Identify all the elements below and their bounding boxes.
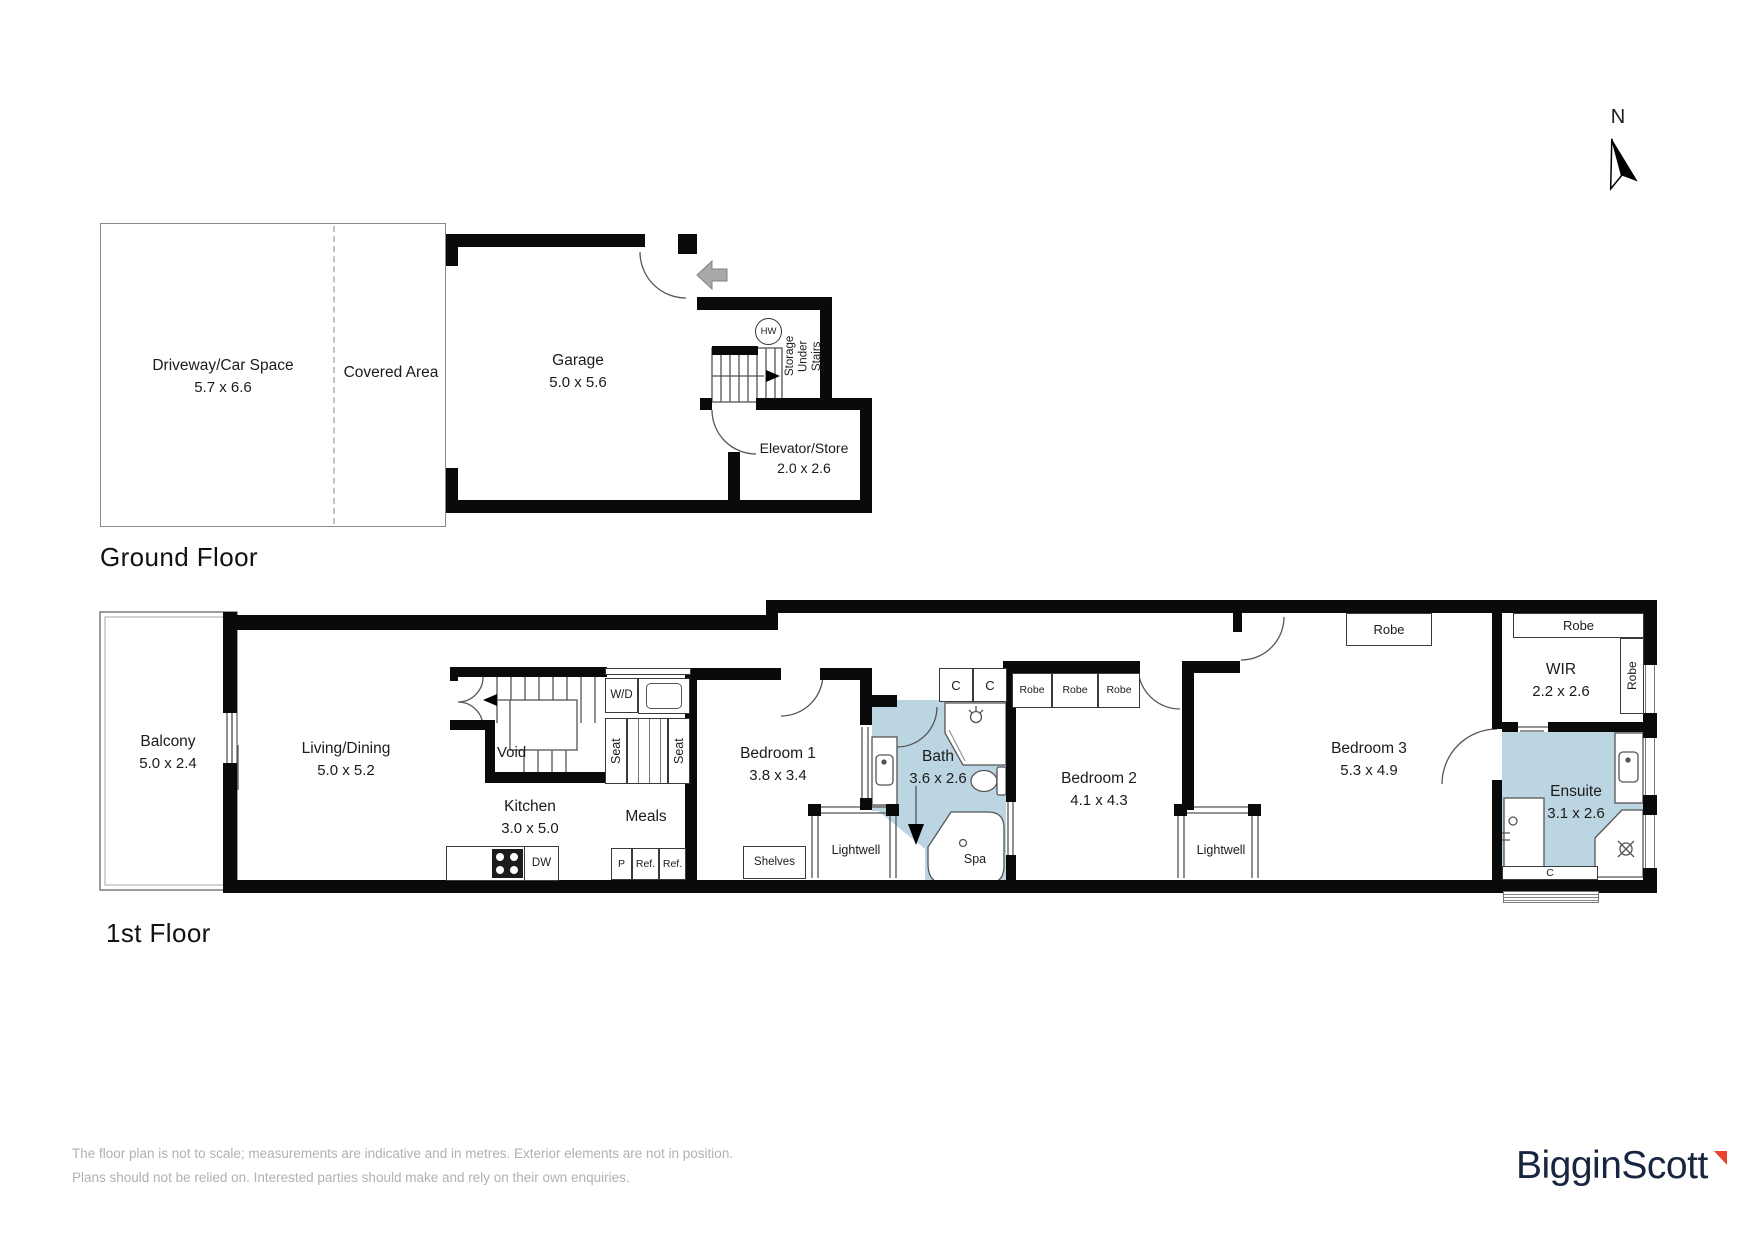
north-label: N <box>1600 106 1636 129</box>
storage-line-1: Storage <box>784 336 796 376</box>
ff-wall-right-2 <box>1643 713 1657 738</box>
bed3-wir-wall-upper <box>1492 600 1502 729</box>
fridge-box-2: Ref. <box>659 848 686 880</box>
disclaimer: The floor plan is not to scale; measurem… <box>72 1142 733 1190</box>
storage-line-2: Under <box>798 340 810 371</box>
seat-right-label: Seat <box>673 738 686 764</box>
shelves-box: Shelves <box>743 846 806 879</box>
seat-left-label: Seat <box>610 738 623 764</box>
stair-wall-left-lower <box>485 720 495 782</box>
wir-name: WIR <box>1532 659 1590 681</box>
balcony-dims: 5.0 x 2.4 <box>139 753 197 775</box>
disclaimer-line-2: Plans should not be relied on. Intereste… <box>72 1166 733 1190</box>
wir-robe-top: Robe <box>1513 613 1644 638</box>
ensuite-toilet <box>1504 798 1544 873</box>
seat-right-box: Seat <box>668 718 690 784</box>
driveway-name: Driveway/Car Space <box>152 355 293 377</box>
bath-vanity-tap <box>882 760 886 764</box>
elevator-dims: 2.0 x 2.6 <box>760 458 849 478</box>
dishwasher-box: DW <box>524 846 559 881</box>
stair-void-rail <box>510 700 577 750</box>
garage-entry-door-arc <box>640 252 686 298</box>
bedroom2-robe-2: Robe <box>1052 673 1098 708</box>
bedroom1-wall-right-lower <box>860 798 872 810</box>
bedroom1-name: Bedroom 1 <box>740 743 816 765</box>
garage-label: Garage 5.0 x 5.6 <box>549 350 607 394</box>
bedroom2-door-arc <box>1138 667 1180 709</box>
ff-wall-bottom <box>223 880 1657 893</box>
robe-label-3: Robe <box>1106 685 1131 696</box>
agency-logo: BigginScott <box>1516 1144 1708 1188</box>
wir-dims: 2.2 x 2.6 <box>1532 681 1590 703</box>
ensuite-side-window-1 <box>1645 738 1655 795</box>
stair-wall-top <box>450 667 607 677</box>
bedroom3-door-arc <box>1241 617 1284 660</box>
bedroom3-robe: Robe <box>1346 613 1432 646</box>
lightwell2-label: Lightwell <box>1197 843 1246 857</box>
agency-logo-flag-icon <box>1714 1151 1727 1165</box>
ff-wall-top-jog <box>766 600 778 630</box>
laundry-trough-sink-icon <box>646 683 682 709</box>
ff-wall-right-1 <box>1643 600 1657 665</box>
bath-toilet <box>971 771 997 792</box>
stairs-lower-treads <box>524 750 566 772</box>
bedroom1-dims: 3.8 x 3.4 <box>740 765 816 787</box>
robe-label-6: Robe <box>1626 662 1638 691</box>
bath-bed2-wall-lower <box>1006 855 1016 886</box>
corridor-wall-a <box>1003 661 1140 673</box>
shelves-label: Shelves <box>754 857 795 869</box>
ff-wall-left-lower <box>223 763 237 892</box>
ensuite-side-window-2 <box>1645 815 1655 868</box>
elevator-door-arc <box>712 410 756 454</box>
bedroom2-internal-window <box>1008 802 1013 855</box>
elevator-wall-stub <box>700 398 712 410</box>
garage-name: Garage <box>549 350 607 372</box>
hot-water-unit: HW <box>755 318 782 345</box>
bedroom2-name: Bedroom 2 <box>1061 768 1137 790</box>
fridge-label-1: Ref. <box>636 859 655 870</box>
fridge-box-1: Ref. <box>632 848 659 880</box>
stair-wall-corner <box>450 667 458 681</box>
living-label: Living/Dining 5.0 x 5.2 <box>302 738 391 782</box>
seat-left-box: Seat <box>605 718 627 784</box>
cupboard-label-3: C <box>1546 868 1554 879</box>
bath-toilet-cistern <box>997 767 1006 795</box>
lightwell1-post-right <box>886 804 899 816</box>
bedroom2-robe-3: Robe <box>1098 673 1140 708</box>
hot-water-label: HW <box>761 326 777 337</box>
bedroom1-wall-top-a <box>697 668 781 680</box>
wir-side-window <box>1645 665 1655 713</box>
lightwell1-label: Lightwell <box>832 843 881 857</box>
living-name: Living/Dining <box>302 738 391 760</box>
void-label: Void <box>497 744 526 761</box>
bedroom3-dims: 5.3 x 4.9 <box>1331 760 1407 782</box>
ensuite-cupboard: C <box>1502 866 1598 880</box>
ff-wall-top-left <box>237 615 778 630</box>
stairs-arrowhead <box>483 694 497 706</box>
garage-wall-door-stub <box>678 234 697 254</box>
entry-arrow-icon <box>697 261 727 289</box>
elevator-wall-right <box>860 398 872 513</box>
bath-cupboard-2: C <box>973 668 1007 702</box>
storage-under-stairs-label: Storage Under Stairs <box>784 300 825 412</box>
bedroom2-label: Bedroom 2 4.1 x 4.3 <box>1061 768 1137 812</box>
bedroom1-label: Bedroom 1 3.8 x 3.4 <box>740 743 816 787</box>
kitchen-dims: 3.0 x 5.0 <box>501 818 559 840</box>
bath-label: Bath 3.6 x 2.6 <box>909 746 967 790</box>
robe-label-2: Robe <box>1062 685 1087 696</box>
covered-area-name: Covered Area <box>344 362 439 384</box>
kitchen-name: Kitchen <box>501 796 559 818</box>
garage-door-stub-top <box>446 234 458 266</box>
bath-wall-top <box>862 695 897 707</box>
wir-slider-door <box>1516 727 1548 731</box>
floorplan-page: W/D Seat Seat DW P Ref. Ref. Shelves C C… <box>0 0 1754 1240</box>
robe-label-4: Robe <box>1373 623 1404 636</box>
seat-bench-slats <box>627 718 668 784</box>
spa-label: Spa <box>964 852 986 866</box>
lightwell2-post-right <box>1248 804 1261 816</box>
storage-line-3: Stairs <box>811 341 823 370</box>
ff-wall-top-right <box>778 600 1657 613</box>
balcony-name: Balcony <box>139 731 197 753</box>
ground-stairs-wall-cap <box>712 346 758 355</box>
pantry-label: P <box>618 859 625 870</box>
ensuite-label: Ensuite 3.1 x 2.6 <box>1547 781 1605 825</box>
kitchen-label: Kitchen 3.0 x 5.0 <box>501 796 559 840</box>
lightwell1-post-left <box>808 804 821 816</box>
elevator-name: Elevator/Store <box>760 438 849 458</box>
bed3-wir-wall-lower <box>1492 780 1502 880</box>
laundry-trough <box>638 678 690 714</box>
meals-label: Meals <box>625 806 666 828</box>
bedroom2-robe-1: Robe <box>1012 673 1052 708</box>
first-floor-title: 1st Floor <box>106 918 211 949</box>
driveway-dims: 5.7 x 6.6 <box>152 377 293 399</box>
bedroom1-door-arc <box>781 674 823 716</box>
cooktop-icon <box>492 849 523 878</box>
covered-area-label: Covered Area <box>344 362 439 384</box>
kitchen-bench-top <box>605 668 691 675</box>
bedroom3-label: Bedroom 3 5.3 x 4.9 <box>1331 738 1407 782</box>
wir-label: WIR 2.2 x 2.6 <box>1532 659 1590 703</box>
wir-robe-side: Robe <box>1620 638 1644 714</box>
driveway-label: Driveway/Car Space 5.7 x 6.6 <box>152 355 293 399</box>
ensuite-dims: 3.1 x 2.6 <box>1547 803 1605 825</box>
meals-name: Meals <box>625 806 666 828</box>
ff-wall-right-3 <box>1643 795 1657 815</box>
ensuite-door-arc <box>1442 729 1497 784</box>
bedroom2-dims: 4.1 x 4.3 <box>1061 790 1137 812</box>
wir-ensuite-wall-a <box>1502 722 1518 732</box>
robe-label-1: Robe <box>1019 685 1044 696</box>
pantry-box: P <box>611 848 632 880</box>
bed2-bed3-wall <box>1182 661 1194 810</box>
ensuite-name: Ensuite <box>1547 781 1605 803</box>
bath-name: Bath <box>909 746 967 768</box>
dishwasher-label: DW <box>532 858 551 870</box>
ff-wall-left-upper <box>223 612 237 713</box>
balcony-label: Balcony 5.0 x 2.4 <box>139 731 197 775</box>
lightwell2-post-left <box>1174 804 1187 816</box>
ensuite-bottom-louvre-window <box>1503 891 1599 903</box>
laundry-wd-box: W/D <box>605 678 638 713</box>
stair-wall-bottom <box>485 772 607 783</box>
fridge-label-2: Ref. <box>663 859 682 870</box>
ensuite-vanity-tap <box>1626 758 1630 762</box>
cupboard-label-2: C <box>985 679 994 692</box>
bath-dims: 3.6 x 2.6 <box>909 768 967 790</box>
laundry-wd-label: W/D <box>610 690 632 702</box>
garage-wall-top <box>446 234 645 247</box>
disclaimer-line-1: The floor plan is not to scale; measurem… <box>72 1142 733 1166</box>
robe-label-5: Robe <box>1563 619 1594 632</box>
garage-dims: 5.0 x 5.6 <box>549 372 607 394</box>
garage-wall-bottom <box>446 500 872 513</box>
bedroom3-name: Bedroom 3 <box>1331 738 1407 760</box>
north-arrow-icon <box>1598 135 1637 189</box>
cupboard-label-1: C <box>951 679 960 692</box>
bedroom1-side-window <box>862 727 868 798</box>
bath-cupboard-1: C <box>939 668 973 702</box>
ground-floor-title: Ground Floor <box>100 542 258 573</box>
bedroom3-door-notch <box>1233 613 1242 632</box>
living-dims: 5.0 x 5.2 <box>302 760 391 782</box>
elevator-label: Elevator/Store 2.0 x 2.6 <box>760 438 849 478</box>
wir-ensuite-wall-b <box>1548 722 1643 732</box>
garage-door-stub-bottom <box>446 468 458 513</box>
